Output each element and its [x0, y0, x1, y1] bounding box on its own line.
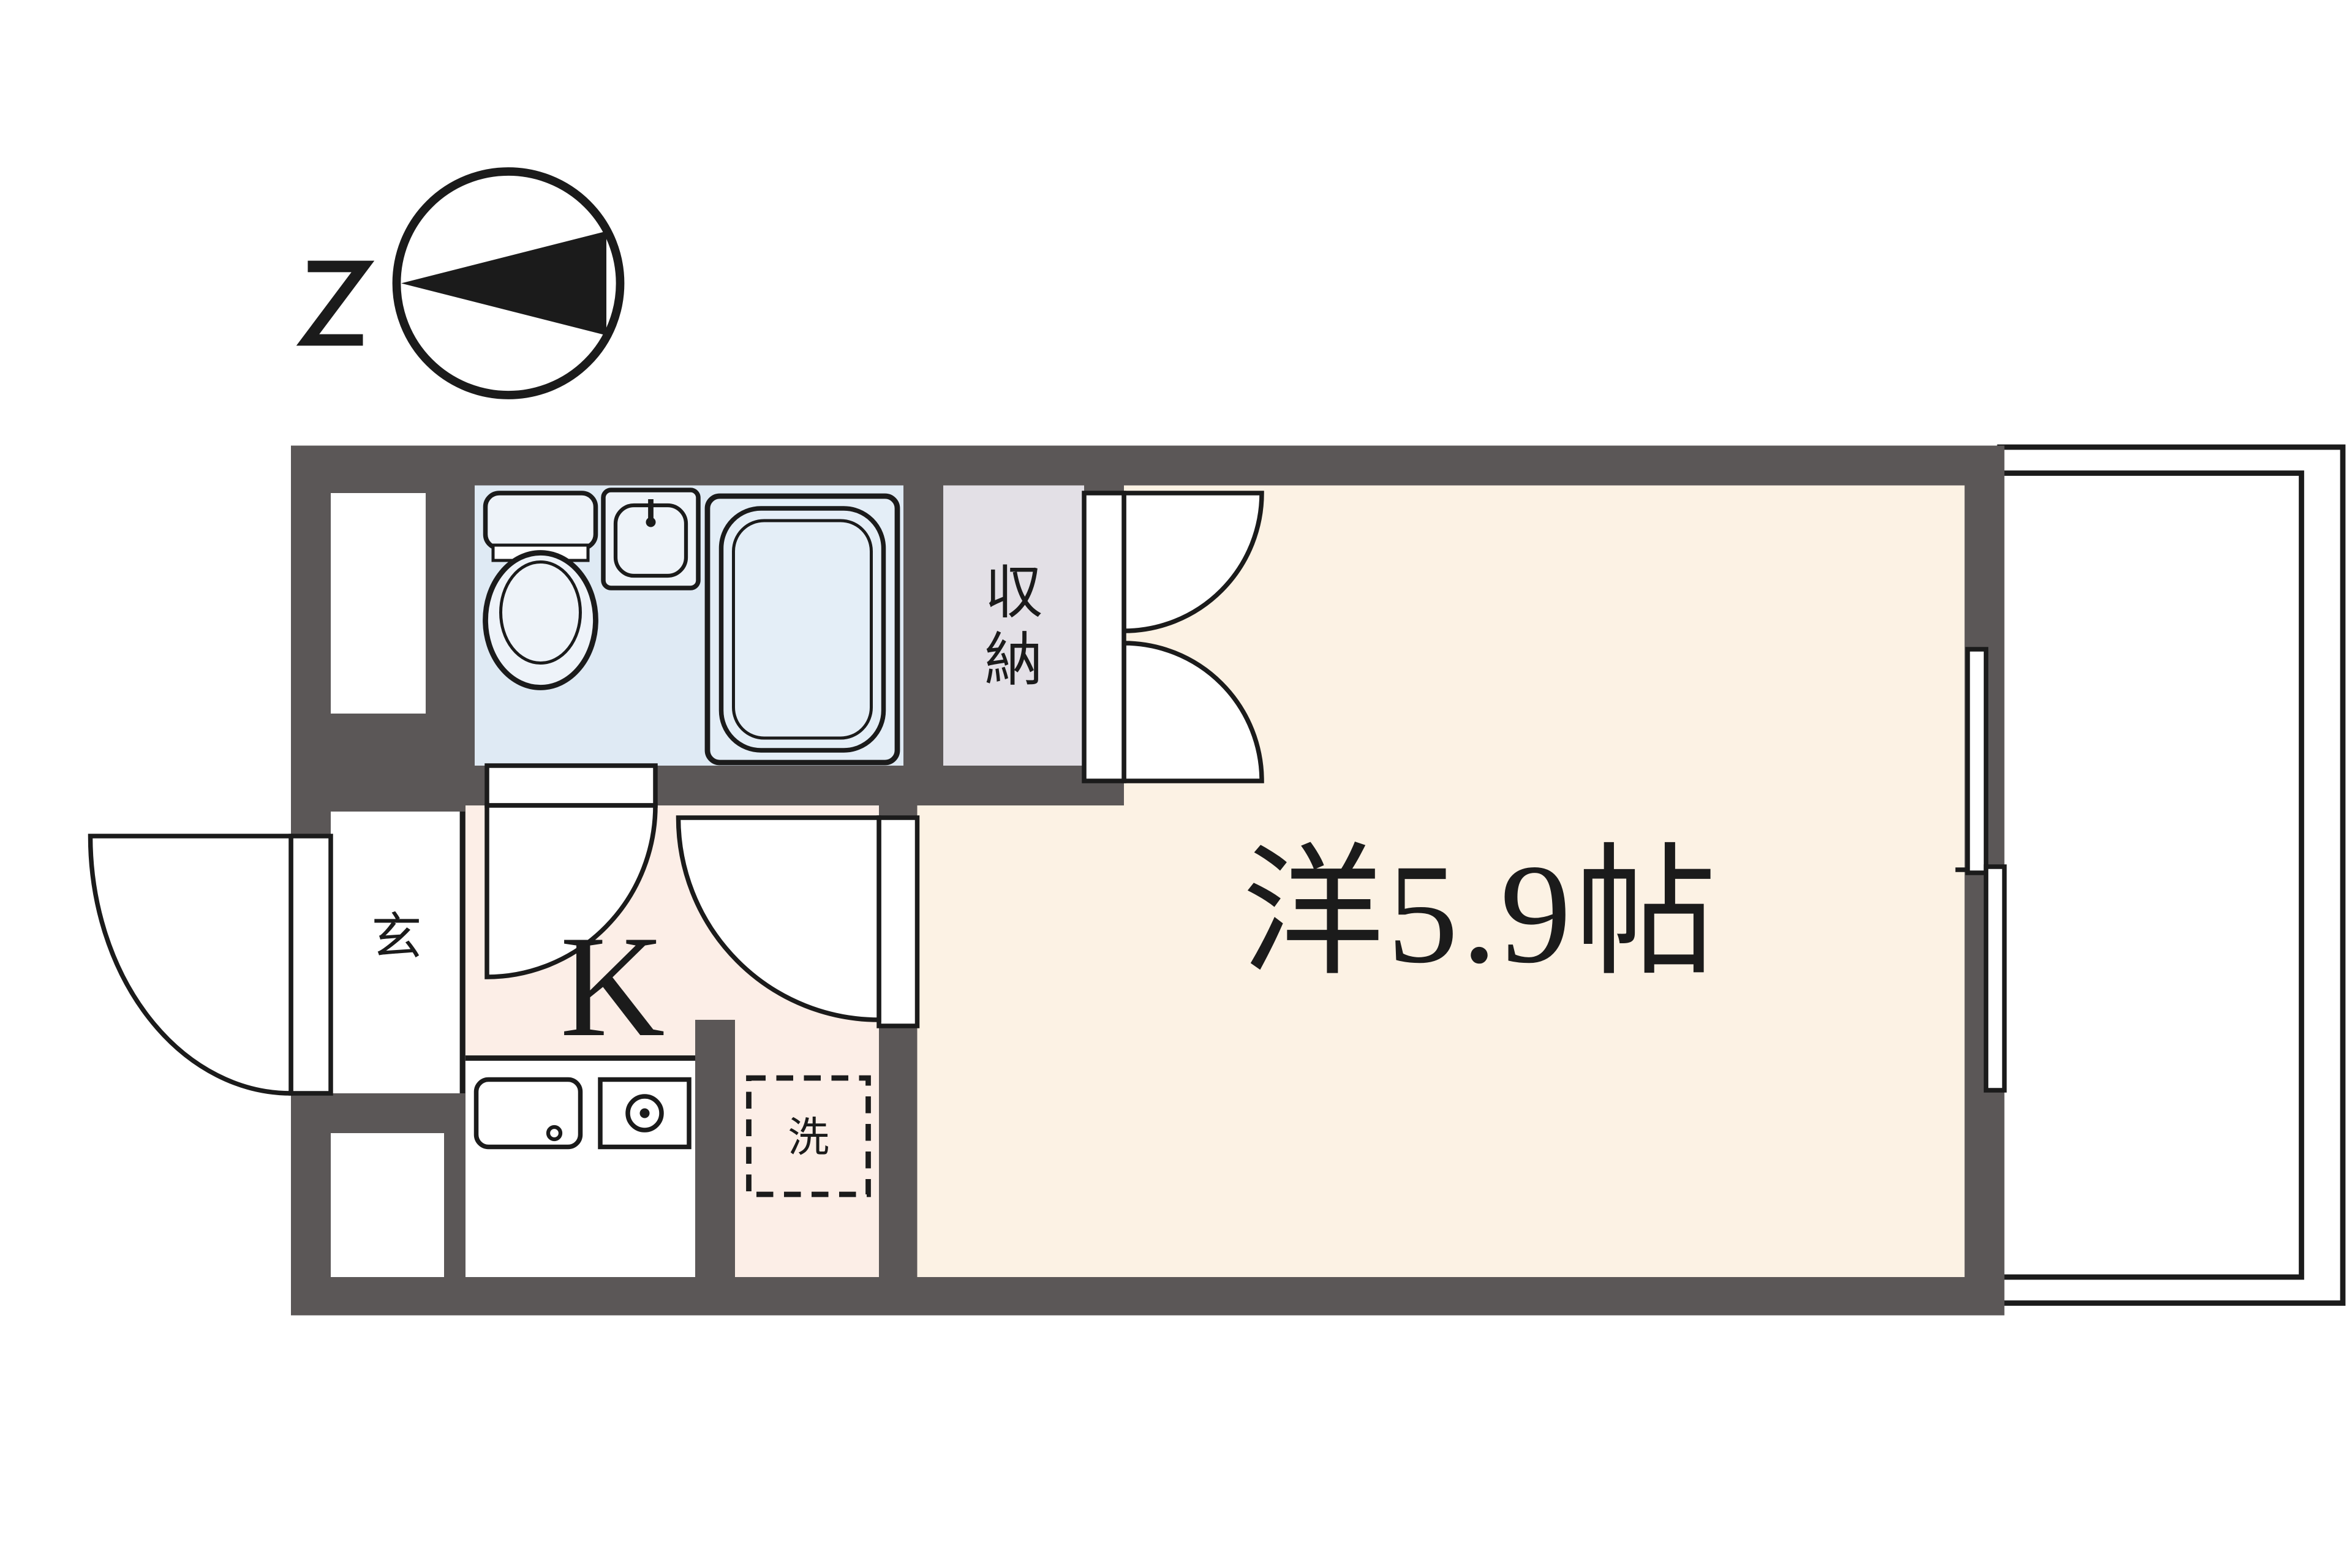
main-room-floor-extension — [918, 805, 1125, 1277]
main-room-label: 洋5.9帖 — [1242, 835, 1720, 993]
kitchen-burner-center — [640, 1109, 650, 1118]
entrance-label: 玄 — [371, 909, 422, 965]
kitchen-room-door-opening — [879, 818, 918, 1026]
kitchen-sink — [477, 1080, 581, 1147]
bathtub — [707, 496, 897, 763]
north-letter-icon — [308, 266, 363, 340]
floor-plan-canvas: 洗 洋5.9帖 K 玄 収 納 N — [0, 0, 2352, 1568]
wash-basin — [603, 490, 698, 588]
toilet — [486, 493, 596, 688]
compass: N — [308, 171, 620, 395]
entrance-door-opening — [291, 836, 331, 1093]
bathroom-door-opening — [487, 766, 655, 805]
toilet-tank — [486, 493, 596, 548]
utility-niche-bottom — [331, 1133, 444, 1277]
wall-stub-kitchen — [695, 1020, 735, 1277]
utility-niche-top — [331, 493, 426, 714]
kitchen-sink-drain — [548, 1127, 560, 1139]
closet-door-panels — [1084, 493, 1124, 781]
window-pane-lower — [1986, 867, 2005, 1090]
kitchen-label: K — [560, 906, 665, 1067]
entrance-door-swing — [91, 836, 292, 1093]
laundry-label: 洗 — [788, 1115, 829, 1161]
balcony — [2000, 447, 2343, 1303]
storage-label-char-bottom: 納 — [984, 628, 1042, 693]
storage-label-char-top: 収 — [984, 560, 1042, 625]
basin-faucet-dot — [646, 518, 656, 527]
floor-plan-page: 洗 洋5.9帖 K 玄 収 納 N — [0, 0, 2352, 1568]
window-pane-upper — [1968, 649, 1986, 873]
storage-floor — [943, 486, 1084, 766]
balcony-inner-rail — [2000, 473, 2302, 1278]
